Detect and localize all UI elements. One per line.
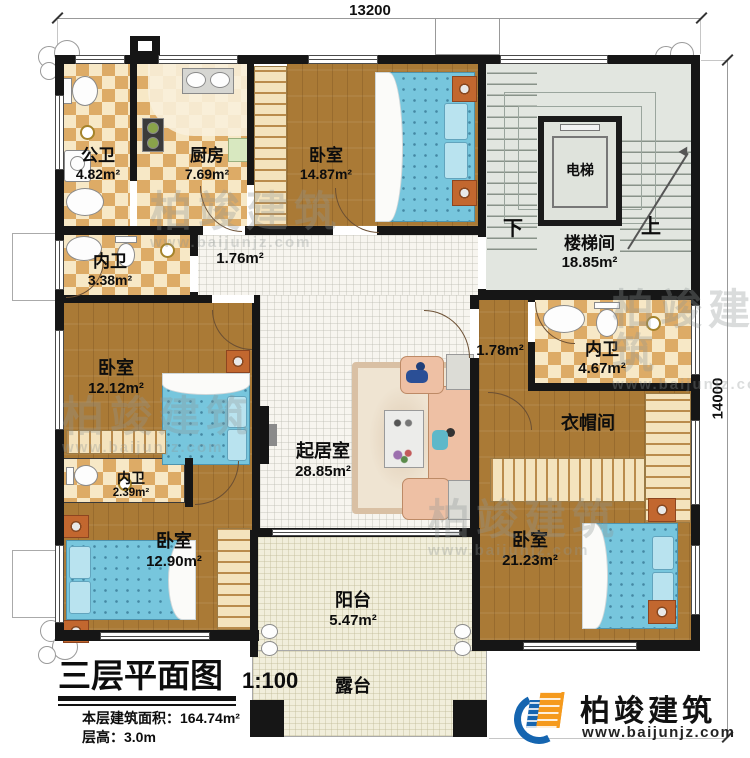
shrub [38, 646, 56, 664]
room-label-stairwell: 楼梯间 18.85m² [542, 234, 637, 272]
plan-scale: 1:100 [242, 668, 312, 694]
room-label-terrace: 露台 [317, 676, 389, 698]
title-underline-thin [58, 704, 236, 706]
nightstand [648, 600, 676, 624]
room-label-living: 起居室 28.85m² [277, 441, 369, 481]
column [261, 641, 278, 656]
person [406, 370, 428, 383]
logo: 柏竣建筑 www.baijunjz.com [512, 686, 742, 750]
room-label-bath-right: 内卫 4.67m² [562, 340, 642, 378]
room-label-kitchen: 厨房 7.69m² [178, 146, 236, 183]
ac-platform [12, 550, 56, 618]
towel-ring [646, 316, 661, 331]
tv [260, 406, 269, 464]
tv-stand [269, 424, 277, 446]
room-label-bedroom-left: 卧室 12.12m² [72, 358, 160, 398]
nightstand [226, 350, 250, 373]
bed-sheet [582, 523, 608, 629]
wall [478, 290, 700, 300]
towel-ring [80, 125, 95, 140]
wardrobe [66, 430, 166, 454]
kitchen-sink-basin [186, 72, 206, 88]
window [691, 305, 700, 375]
plan-title: 三层平面图 [58, 656, 238, 696]
window [100, 632, 210, 640]
ac-platform [12, 233, 56, 301]
wall [470, 295, 479, 309]
burner [147, 122, 159, 134]
window [691, 545, 700, 615]
window [55, 240, 64, 290]
toilet-tank [594, 302, 620, 309]
window [523, 642, 637, 650]
window [500, 55, 608, 64]
toilet-tank [115, 236, 137, 243]
dimension-right-value: 14000 [710, 369, 727, 429]
pillow [227, 396, 247, 428]
toilet-bowl [72, 76, 98, 106]
room-label-public-bath: 公卫 4.82m² [63, 146, 133, 183]
wall [247, 63, 254, 185]
room-label-balcony: 阳台 5.47m² [317, 590, 389, 630]
nightstand [452, 76, 477, 102]
logo-building-orange [535, 692, 564, 728]
corridor-area-label: 1.78m² [462, 342, 538, 360]
pillow [227, 429, 247, 461]
toilet-tank [66, 467, 74, 485]
bed-sheet [162, 373, 250, 395]
dimension-right-line [727, 60, 728, 738]
wall [528, 383, 692, 391]
room-label-cloakroom: 衣帽间 [545, 413, 631, 435]
person [432, 430, 448, 450]
closet-top [254, 66, 287, 227]
room-label-bedroom-bottom-right: 卧室 21.23m² [484, 530, 576, 570]
door-opening [478, 237, 486, 289]
room-label-bath-bottom: 内卫 2.39m² [100, 470, 162, 501]
pillow [444, 142, 468, 179]
nightstand [452, 180, 477, 206]
pillow [652, 536, 674, 570]
wall [472, 528, 480, 650]
window [308, 55, 378, 64]
room-label-bedroom-bottom-left: 卧室 12.90m² [128, 531, 220, 571]
armchair [402, 478, 450, 520]
room-label-bath-left: 内卫 3.38m² [75, 252, 145, 289]
pillow [69, 581, 91, 614]
terrace-pillar [453, 700, 487, 737]
window [55, 330, 64, 430]
toilet-bowl [596, 309, 618, 337]
elevator-counterweight [560, 124, 600, 131]
door-opening [212, 295, 254, 303]
window [55, 545, 64, 623]
wall [250, 530, 258, 657]
floor-height-text: 层高：3.0m [82, 729, 252, 746]
window [158, 55, 238, 64]
room-label-bedroom-top: 卧室 14.87m² [288, 146, 364, 183]
wall [470, 358, 479, 530]
bed-sheet [375, 72, 403, 222]
stair-down-label: 下 [498, 217, 528, 241]
dimension-extension [700, 20, 701, 54]
balcony-sliding-door [272, 529, 460, 536]
elevator-label: 电梯 [552, 162, 608, 179]
toilet-tank [63, 78, 72, 104]
logo-website: www.baijunjz.com [582, 724, 744, 741]
wall [185, 458, 193, 507]
toilet-bowl [74, 465, 98, 486]
door-opening [528, 302, 535, 342]
pillow [444, 103, 468, 140]
kitchen-sink-basin [210, 72, 230, 88]
nightstand [63, 515, 89, 538]
wall [252, 303, 260, 530]
table-items [392, 418, 414, 428]
roof-outline [435, 18, 500, 55]
column [261, 624, 278, 639]
window [75, 55, 125, 64]
title-underline [58, 696, 236, 701]
floor-plan: 13200 14000 [0, 0, 750, 758]
column [454, 624, 471, 639]
sink [66, 188, 104, 216]
stair-up-label: 上 [636, 215, 666, 239]
pillow [69, 546, 91, 579]
table-decor [390, 446, 416, 464]
dimension-top-value: 13200 [330, 2, 410, 19]
column [454, 641, 471, 656]
burner [147, 137, 159, 149]
chimney-core [138, 41, 152, 51]
wardrobe [217, 528, 251, 630]
floor-area-text: 本层建筑面积：164.74m² [82, 710, 252, 727]
terrace-pillar [250, 700, 284, 737]
logo-icon [512, 686, 574, 748]
towel-ring [160, 243, 175, 258]
dimension-extension [701, 60, 727, 61]
wall [63, 226, 485, 235]
hallway-area-label: 1.76m² [200, 250, 280, 268]
door-opening [190, 256, 198, 292]
wardrobe [490, 458, 645, 502]
window [691, 420, 700, 505]
nightstand [648, 498, 676, 522]
